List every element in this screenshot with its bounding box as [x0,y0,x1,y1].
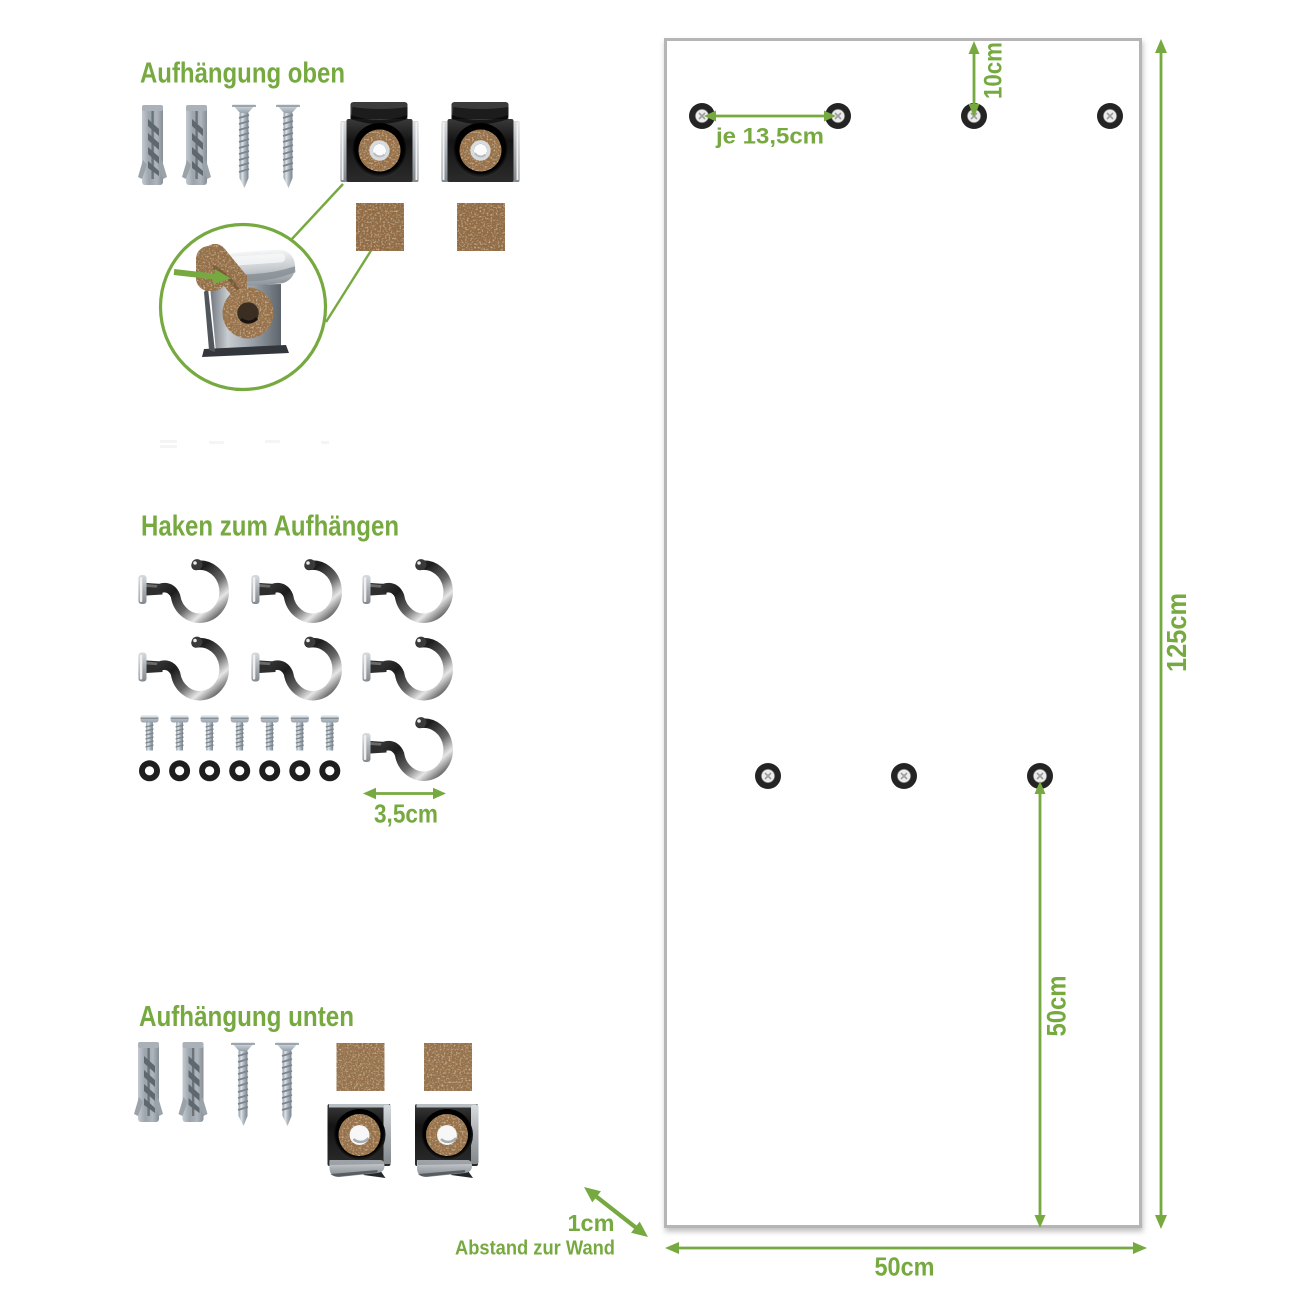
svg-text:1cm: 1cm [568,1210,615,1236]
svg-text:3,5cm: 3,5cm [374,799,438,829]
svg-text:50cm: 50cm [875,1252,935,1282]
svg-text:10cm: 10cm [980,42,1008,99]
svg-text:Aufhängung oben: Aufhängung oben [140,58,345,90]
svg-text:Abstand zur Wand: Abstand zur Wand [455,1238,615,1260]
svg-text:Haken zum Aufhängen: Haken zum Aufhängen [141,511,399,543]
svg-text:125cm: 125cm [1161,593,1192,672]
svg-text:50cm: 50cm [1042,976,1072,1037]
svg-text:je 13,5cm: je 13,5cm [715,124,824,149]
svg-text:Aufhängung unten: Aufhängung unten [139,1001,354,1033]
